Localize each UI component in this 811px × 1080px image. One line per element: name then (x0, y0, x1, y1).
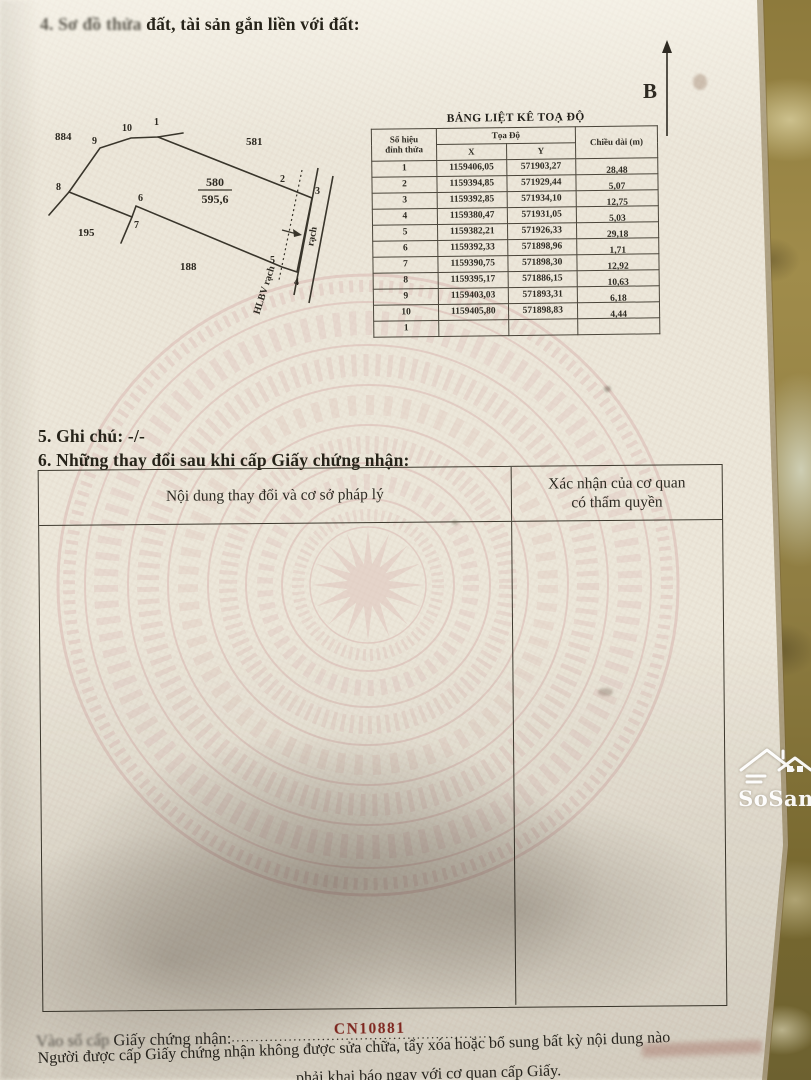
length-cell: 5,07 (576, 174, 658, 191)
length-value: 6,18 (610, 294, 627, 303)
length-value: 29,18 (607, 230, 628, 239)
plot-area: 595,6 (202, 192, 229, 206)
length-value: 1,71 (609, 246, 626, 255)
vertex-label-10: 10 (122, 123, 132, 134)
plot-number: 580 (206, 175, 224, 189)
north-label: B (643, 79, 657, 103)
x-cell (439, 320, 509, 337)
x-cell: 1159392,33 (438, 240, 508, 257)
vertex-label-6: 6 (138, 193, 143, 204)
corridor-arrowhead (293, 229, 302, 237)
length-cell: 28,48 (576, 158, 658, 175)
vertex-label-2: 2 (280, 174, 285, 185)
vertex-cell: 8 (373, 272, 438, 289)
length-value: 12,75 (607, 198, 628, 207)
col-x-header: X (437, 144, 507, 161)
length-value: 5,07 (609, 182, 626, 191)
vertex-label-8: 8 (56, 182, 61, 193)
y-cell: 571929,44 (506, 175, 576, 192)
sosan-watermark-text: SoSan (730, 786, 811, 811)
x-cell: 1159395,17 (438, 272, 508, 289)
boundary-edge-7-8 (69, 192, 132, 217)
length-value: 10,63 (607, 278, 628, 287)
vertex-label-4: 4 (294, 277, 299, 288)
certificate-number: CN10881 (334, 1020, 406, 1039)
confirm-header-line1: Xác nhận của cơ quan (548, 473, 685, 494)
paper-stain (452, 520, 458, 525)
plot-number-area: 580 595,6 (198, 175, 232, 206)
changes-header-row: Nội dung thay đổi và cơ sở pháp lý Xác n… (39, 465, 722, 526)
vertex-cell: 9 (373, 288, 438, 305)
coordinate-table-title: BẢNG LIỆT KÊ TOẠ ĐỘ (371, 110, 661, 126)
vertex-cell: 1 (374, 320, 439, 337)
paper-stain (693, 74, 707, 90)
confirm-header-line2: có thẩm quyền (571, 493, 662, 513)
x-cell: 1159405,80 (438, 304, 508, 321)
canal-label: rạch (305, 226, 320, 248)
vertex-label-5: 5 (270, 255, 275, 266)
y-cell: 571931,05 (507, 207, 577, 224)
length-cell: 6,18 (577, 286, 659, 303)
length-cell: 12,75 (576, 190, 658, 207)
changes-confirm-cell (512, 520, 726, 1005)
vertex-cell: 3 (372, 192, 437, 209)
length-value: 4,44 (610, 310, 627, 319)
x-cell: 1159394,85 (437, 176, 507, 193)
length-value: 12,92 (607, 262, 628, 271)
x-cell: 1159382,21 (437, 224, 507, 241)
length-cell (578, 318, 660, 335)
length-value: 5,03 (609, 214, 626, 223)
coordinate-table-block: BẢNG LIỆT KÊ TOẠ ĐỘ Số hiệuđỉnh thửa Tọa… (371, 110, 664, 338)
paper-stain (604, 386, 611, 392)
neighbor-884-label: 884 (55, 131, 72, 143)
sosan-watermark: SoSan (730, 744, 811, 811)
y-cell: 571926,33 (507, 223, 577, 240)
changes-col-content-header: Nội dung thay đổi và cơ sở pháp lý (39, 467, 512, 525)
y-cell: 571898,30 (507, 255, 577, 272)
col-y-header: Y (506, 143, 576, 160)
vertex-cell: 4 (372, 208, 437, 225)
y-cell: 571898,96 (507, 239, 577, 256)
footer-warning-line2: phải khai báo ngay với cơ quan cấp Giấy. (296, 1062, 562, 1080)
y-cell: 571898,83 (508, 303, 578, 320)
vertex-label-3: 3 (315, 186, 320, 197)
neighbor-195-label: 195 (78, 227, 95, 239)
neighbor-188-label: 188 (180, 261, 197, 273)
vertex-cell: 10 (373, 304, 438, 321)
length-cell: 29,18 (576, 222, 658, 239)
vertex-cell: 1 (372, 160, 437, 177)
coordinate-table: Số hiệuđỉnh thửa Tọa Độ Chiều dài (m) X … (371, 125, 661, 337)
corridor-label: HLBV rạch (252, 264, 278, 315)
neighbor-581-label: 581 (246, 136, 263, 148)
section4-heading-text: đất, tài sản gắn liền với đất: (142, 14, 360, 34)
coord-row: 1 (374, 318, 660, 337)
changes-col-confirm-header: Xác nhận của cơ quan có thẩm quyền (512, 465, 722, 521)
vertex-cell: 6 (373, 240, 438, 257)
vertex-cell: 5 (373, 224, 438, 241)
length-cell: 4,44 (577, 302, 659, 319)
length-cell: 5,03 (576, 206, 658, 223)
vertex-label-1: 1 (154, 117, 159, 128)
vertex-label-7: 7 (134, 220, 139, 231)
vertex-label-9: 9 (92, 136, 97, 147)
x-cell: 1159403,03 (438, 288, 508, 305)
y-cell: 571886,15 (508, 271, 578, 288)
section5-heading: 5. Ghi chú: -/- (38, 426, 145, 447)
vertex-cell: 7 (373, 256, 438, 273)
col-vertex-line2: đỉnh thửa (385, 144, 423, 154)
x-cell: 1159380,47 (437, 208, 507, 225)
red-ink-smudge (642, 1040, 762, 1057)
x-cell: 1159392,85 (437, 192, 507, 209)
house-icon (739, 744, 811, 784)
col-coords-header: Tọa Độ (436, 127, 575, 145)
x-cell: 1159390,75 (438, 256, 508, 273)
vertex-cell: 2 (372, 176, 437, 193)
parcel-sketch: 884 581 195 188 580 595,6 1 2 3 4 5 6 7 … (30, 108, 370, 343)
y-cell: 571903,27 (506, 159, 576, 176)
length-cell: 10,63 (577, 270, 659, 287)
section4-heading: 4. Sơ đồ thửa đất, tài sản gắn liền với … (40, 14, 360, 35)
coord-header-row1: Số hiệuđỉnh thửa Tọa Độ Chiều dài (m) (371, 126, 657, 145)
changes-body-row (39, 520, 726, 1009)
y-cell: 571893,31 (508, 287, 578, 304)
y-cell (508, 319, 578, 336)
y-cell: 571934,10 (507, 191, 577, 208)
length-value: 28,48 (606, 166, 627, 175)
changes-table: Nội dung thay đổi và cơ sở pháp lý Xác n… (38, 464, 728, 1012)
x-cell: 1159406,05 (437, 160, 507, 177)
length-cell: 1,71 (577, 238, 659, 255)
boundary-north-west (49, 133, 183, 215)
length-cell: 12,92 (577, 254, 659, 271)
changes-content-cell (39, 522, 516, 1009)
col-vertex-header: Số hiệuđỉnh thửa (371, 128, 436, 161)
col-length-header: Chiều dài (m) (575, 126, 657, 159)
land-certificate-photo: 4. Sơ đồ thửa đất, tài sản gắn liền với … (0, 0, 811, 1080)
north-arrowhead (662, 40, 672, 53)
paper-stain (598, 688, 613, 696)
section4-heading-blurred-part: 4. Sơ đồ thửa (40, 14, 142, 34)
